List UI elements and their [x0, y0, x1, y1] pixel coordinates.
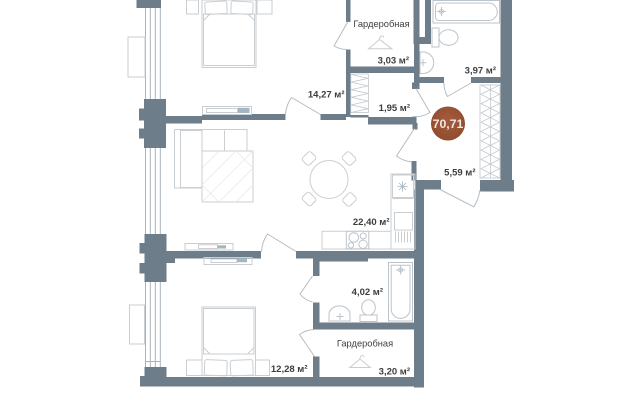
svg-text:22,40 м²: 22,40 м² — [353, 217, 390, 228]
svg-text:14,27 м²: 14,27 м² — [308, 90, 345, 101]
svg-text:4,02 м²: 4,02 м² — [352, 287, 383, 298]
svg-text:5,59 м²: 5,59 м² — [444, 168, 475, 179]
svg-text:Гардеробная: Гардеробная — [353, 19, 409, 29]
svg-text:3,20 м²: 3,20 м² — [379, 367, 410, 378]
svg-text:1,95 м²: 1,95 м² — [379, 103, 410, 114]
svg-text:12,28 м²: 12,28 м² — [271, 364, 308, 375]
svg-text:3,97 м²: 3,97 м² — [465, 66, 496, 77]
svg-text:Гардеробная: Гардеробная — [337, 339, 393, 349]
svg-text:3,03 м²: 3,03 м² — [378, 56, 409, 67]
svg-text:70,71: 70,71 — [433, 117, 464, 131]
